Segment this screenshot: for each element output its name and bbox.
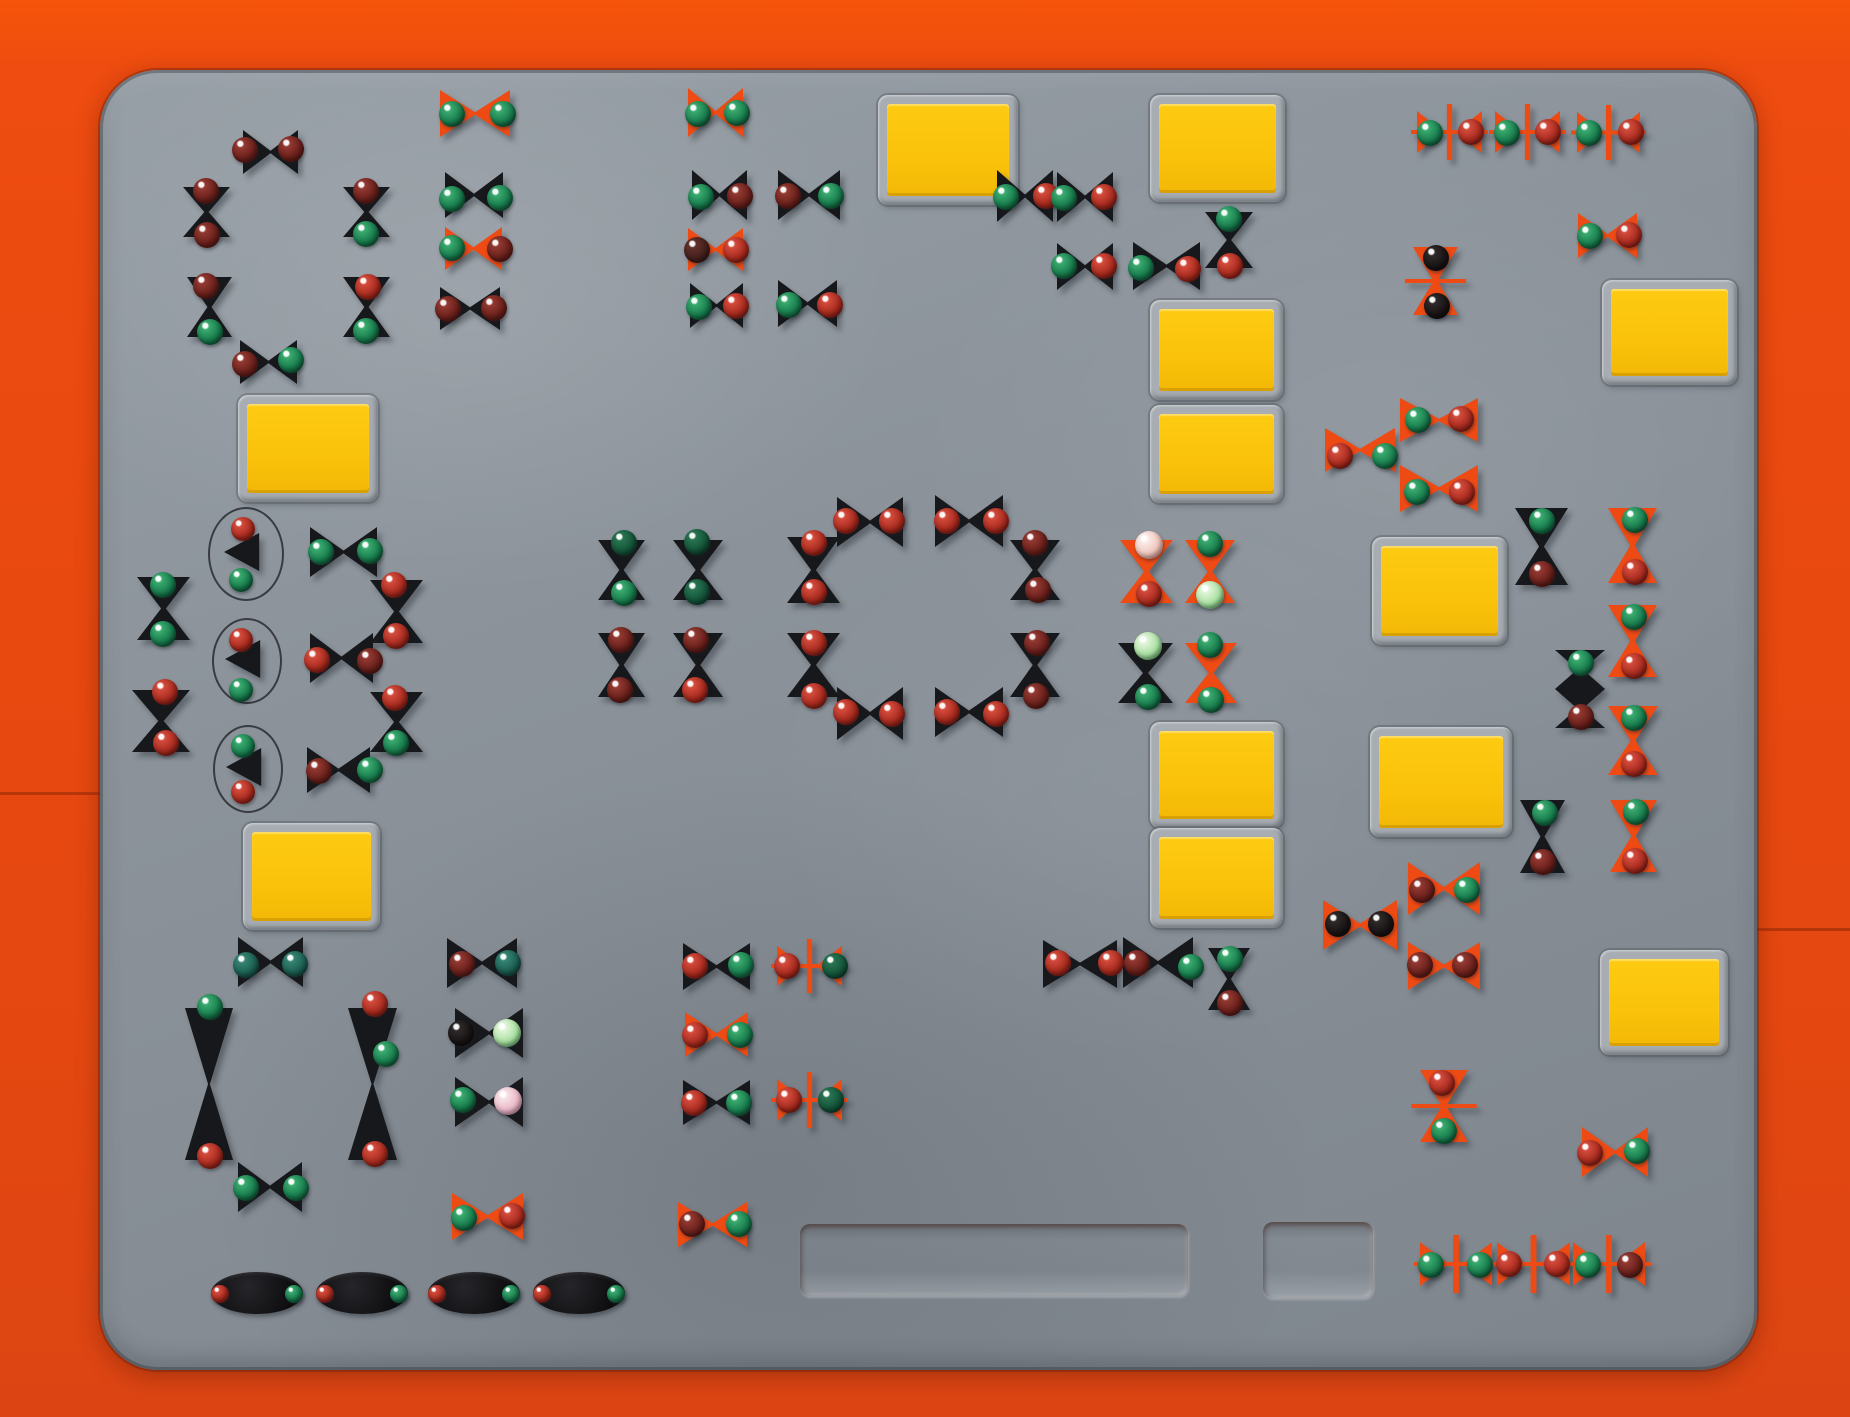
yellow-button-face [887, 104, 1009, 196]
indicator-bead-g [728, 952, 754, 978]
indicator-bead-dr [1217, 990, 1243, 1016]
yellow-button-face [1159, 414, 1274, 494]
indicator-bead-r [1622, 559, 1648, 585]
yellow-button-face [1609, 959, 1719, 1046]
yellow-button-face [1611, 289, 1728, 376]
indicator-bead-g [1135, 684, 1161, 710]
indicator-bead-g [724, 100, 750, 126]
indicator-bead-gw [1135, 531, 1163, 559]
indicator-bead-r [383, 623, 409, 649]
indicator-bead-dg [684, 529, 710, 555]
indicator-bead-g [1405, 407, 1431, 433]
indicator-bead-t [233, 952, 259, 978]
indicator-bead-r [1621, 751, 1647, 777]
yellow-button [243, 823, 380, 930]
indicator-bead-gp [494, 1087, 522, 1115]
yellow-button [1602, 280, 1737, 385]
indicator-bead-g [450, 1087, 476, 1113]
indicator-bead-r [1429, 1070, 1455, 1096]
indicator-bead-g [686, 294, 712, 320]
yellow-button [1150, 405, 1283, 503]
indicator-bead-r [197, 1143, 223, 1169]
indicator-bead-r [817, 292, 843, 318]
indicator-bead-r [304, 647, 330, 673]
indicator-bead-r [1577, 1140, 1603, 1166]
yellow-button [1150, 95, 1285, 202]
indicator-bead-dr [435, 296, 461, 322]
indicator-bead-g [1431, 1118, 1457, 1144]
indicator-bead-g [726, 1090, 752, 1116]
indicator-bead-r [362, 991, 388, 1017]
indicator-bead-r [1448, 406, 1474, 432]
indicator-bead-g [1418, 1252, 1444, 1278]
artwork-photo [0, 0, 1850, 1417]
indicator-bead-g [776, 292, 802, 318]
indicator-bead-g [357, 757, 383, 783]
indicator-bead-dr [487, 236, 513, 262]
indicator-bead-g [439, 186, 465, 212]
indicator-bead-r [1618, 119, 1644, 145]
indicator-bead-dr [683, 627, 709, 653]
indicator-bead-r [1098, 950, 1124, 976]
indicator-bead-g [1576, 120, 1602, 146]
indicator-bead-r [1622, 848, 1648, 874]
indicator-bead-g [1467, 1252, 1493, 1278]
indicator-bead-k [1424, 293, 1450, 319]
indicator-bead-g [607, 1285, 625, 1303]
indicator-bead-dr [1568, 704, 1594, 730]
indicator-bead-dr [1023, 683, 1049, 709]
indicator-bead-r [1091, 253, 1117, 279]
indicator-bead-r [231, 780, 255, 804]
indicator-bead-g [490, 101, 516, 127]
indicator-bead-g [1624, 1138, 1650, 1164]
indicator-bead-g [229, 678, 253, 702]
yellow-button [1150, 722, 1283, 828]
indicator-bead-r [723, 293, 749, 319]
indicator-bead-dr [278, 136, 304, 162]
yellow-button-face [1381, 546, 1498, 636]
indicator-bead-r [1496, 1251, 1522, 1277]
indicator-bead-r [681, 1090, 707, 1116]
indicator-bead-g [1494, 120, 1520, 146]
indicator-bead-g [1621, 604, 1647, 630]
indicator-bead-g [1197, 531, 1223, 557]
indicator-bead-r [1136, 581, 1162, 607]
indicator-bead-r [316, 1285, 334, 1303]
indicator-bead-k [1325, 911, 1351, 937]
indicator-bead-g [1128, 255, 1154, 281]
indicator-bead-g [285, 1285, 303, 1303]
indicator-bead-g [1051, 253, 1077, 279]
indicator-bead-g [1051, 185, 1077, 211]
indicator-bead-r [362, 1141, 388, 1167]
indicator-bead-r [723, 237, 749, 263]
indicator-bead-r [211, 1285, 229, 1303]
indicator-bead-dg [611, 530, 637, 556]
yellow-button [1150, 300, 1283, 400]
indicator-bead-r [499, 1203, 525, 1229]
indicator-bead-r [381, 572, 407, 598]
indicator-bead-r [1449, 479, 1475, 505]
indicator-bead-dr [232, 137, 258, 163]
indicator-bead-dg [818, 1087, 844, 1113]
indicator-bead-r [1091, 184, 1117, 210]
background-seam [0, 792, 100, 795]
indicator-bead-t [495, 950, 521, 976]
indicator-bead-g [685, 101, 711, 127]
tall-hourglass-icon [185, 1008, 233, 1160]
indicator-bead-dr [193, 273, 219, 299]
indicator-bead-r [879, 508, 905, 534]
indicator-bead-dr [1617, 1252, 1643, 1278]
indicator-bead-m [684, 237, 710, 263]
indicator-bead-dr [607, 677, 633, 703]
indicator-bead-gg [1196, 581, 1224, 609]
yellow-button [1370, 727, 1512, 837]
indicator-bead-dr [481, 295, 507, 321]
indicator-bead-g [1372, 443, 1398, 469]
indicator-bead-r [682, 677, 708, 703]
indicator-bead-dr [1022, 530, 1048, 556]
indicator-bead-g [1529, 508, 1555, 534]
indicator-bead-r [153, 730, 179, 756]
indicator-bead-g [197, 319, 223, 345]
indicator-bead-gg [1134, 632, 1162, 660]
indicator-bead-g [993, 184, 1019, 210]
indicator-bead-dr [1409, 877, 1435, 903]
indicator-bead-r [382, 685, 408, 711]
indicator-bead-g [487, 185, 513, 211]
indicator-bead-g [611, 580, 637, 606]
indicator-bead-dr [1529, 561, 1555, 587]
indicator-bead-g [353, 318, 379, 344]
indicator-bead-dr [194, 222, 220, 248]
indicator-bead-r [934, 699, 960, 725]
indicator-bead-r [428, 1285, 446, 1303]
yellow-button-face [1379, 736, 1503, 828]
yellow-button-face [247, 404, 369, 493]
indicator-bead-r [801, 530, 827, 556]
indicator-bead-r [934, 508, 960, 534]
indicator-bead-r [152, 679, 178, 705]
indicator-bead-r [879, 701, 905, 727]
indicator-bead-dr [232, 351, 258, 377]
yellow-button [1600, 950, 1728, 1055]
indicator-bead-r [1621, 653, 1647, 679]
indicator-bead-dr [193, 178, 219, 204]
background-seam [1757, 928, 1850, 931]
indicator-bead-r [231, 517, 255, 541]
indicator-bead-r [1544, 1251, 1570, 1277]
tall-hourglass-icon [348, 1008, 397, 1160]
indicator-bead-r [1175, 256, 1201, 282]
indicator-bead-g [231, 734, 255, 758]
indicator-bead-t [282, 951, 308, 977]
indicator-bead-g [1216, 206, 1242, 232]
indicator-bead-dg [684, 579, 710, 605]
indicator-bead-r [682, 1022, 708, 1048]
indicator-bead-g [1197, 632, 1223, 658]
indicator-bead-r [1327, 443, 1353, 469]
indicator-bead-g [726, 1211, 752, 1237]
indicator-bead-dr [1530, 849, 1556, 875]
yellow-button [1150, 828, 1283, 928]
indicator-bead-dr [679, 1211, 705, 1237]
indicator-bead-k [1368, 911, 1394, 937]
indicator-bead-g [688, 184, 714, 210]
indicator-bead-g [1622, 507, 1648, 533]
indicator-bead-r [983, 508, 1009, 534]
yellow-button-face [1159, 837, 1274, 919]
indicator-bead-g [353, 221, 379, 247]
indicator-bead-dg [822, 953, 848, 979]
indicator-bead-dr [608, 627, 634, 653]
indicator-bead-g [1404, 479, 1430, 505]
indicator-bead-r [355, 274, 381, 300]
indicator-bead-g [502, 1285, 520, 1303]
indicator-bead-dr [449, 951, 475, 977]
indicator-bead-r [801, 683, 827, 709]
indicator-bead-g [150, 621, 176, 647]
indicator-bead-g [439, 101, 465, 127]
indicator-bead-dr [1452, 952, 1478, 978]
yellow-button-face [1159, 731, 1274, 819]
indicator-bead-r [774, 953, 800, 979]
indicator-bead-r [776, 1087, 802, 1113]
indicator-bead-dr [1024, 630, 1050, 656]
indicator-bead-g [451, 1205, 477, 1231]
indicator-bead-k [448, 1020, 474, 1046]
indicator-bead-g [278, 347, 304, 373]
indicator-bead-g [1575, 1252, 1601, 1278]
indicator-bead-g [1217, 946, 1243, 972]
indicator-bead-g [1454, 877, 1480, 903]
indicator-bead-g [383, 730, 409, 756]
blank-window-recess [1263, 1222, 1373, 1298]
indicator-bead-dr [306, 758, 332, 784]
indicator-bead-g [283, 1175, 309, 1201]
indicator-bead-r [801, 579, 827, 605]
indicator-bead-r [801, 630, 827, 656]
panel-stage [0, 0, 1850, 1417]
indicator-bead-g [1178, 954, 1204, 980]
yellow-button-face [1159, 104, 1276, 193]
indicator-bead-g [150, 572, 176, 598]
indicator-bead-r [533, 1285, 551, 1303]
indicator-bead-g [390, 1285, 408, 1303]
indicator-bead-dr [1407, 952, 1433, 978]
indicator-bead-r [229, 628, 253, 652]
indicator-bead-r [1535, 119, 1561, 145]
yellow-button-face [252, 832, 371, 921]
indicator-bead-g [1198, 687, 1224, 713]
indicator-bead-g [439, 235, 465, 261]
indicator-bead-g [818, 183, 844, 209]
indicator-bead-g [233, 1175, 259, 1201]
yellow-button [1372, 537, 1507, 645]
slot-bar-recess [800, 1224, 1188, 1296]
yellow-button-face [1159, 309, 1274, 391]
indicator-bead-g [1577, 223, 1603, 249]
indicator-bead-r [1045, 950, 1071, 976]
indicator-bead-dr [1124, 950, 1150, 976]
indicator-bead-r [1616, 222, 1642, 248]
indicator-bead-dr [357, 648, 383, 674]
indicator-bead-gg [493, 1019, 521, 1047]
indicator-bead-r [1217, 253, 1243, 279]
indicator-bead-dr [775, 183, 801, 209]
indicator-bead-g [308, 539, 334, 565]
indicator-bead-g [727, 1022, 753, 1048]
indicator-bead-dr [353, 178, 379, 204]
indicator-bead-g [1623, 799, 1649, 825]
indicator-bead-r [1458, 119, 1484, 145]
indicator-bead-g [229, 568, 253, 592]
yellow-button [238, 395, 378, 502]
indicator-bead-dr [727, 183, 753, 209]
indicator-bead-k [1423, 245, 1449, 271]
indicator-bead-g [1621, 705, 1647, 731]
indicator-bead-g [1568, 650, 1594, 676]
indicator-bead-dr [1025, 577, 1051, 603]
indicator-bead-r [833, 699, 859, 725]
indicator-bead-g [357, 538, 383, 564]
indicator-bead-g [373, 1041, 399, 1067]
indicator-bead-g [197, 994, 223, 1020]
indicator-bead-g [1417, 120, 1443, 146]
indicator-bead-r [682, 953, 708, 979]
indicator-bead-r [983, 701, 1009, 727]
indicator-bead-g [1532, 800, 1558, 826]
indicator-bead-r [833, 508, 859, 534]
